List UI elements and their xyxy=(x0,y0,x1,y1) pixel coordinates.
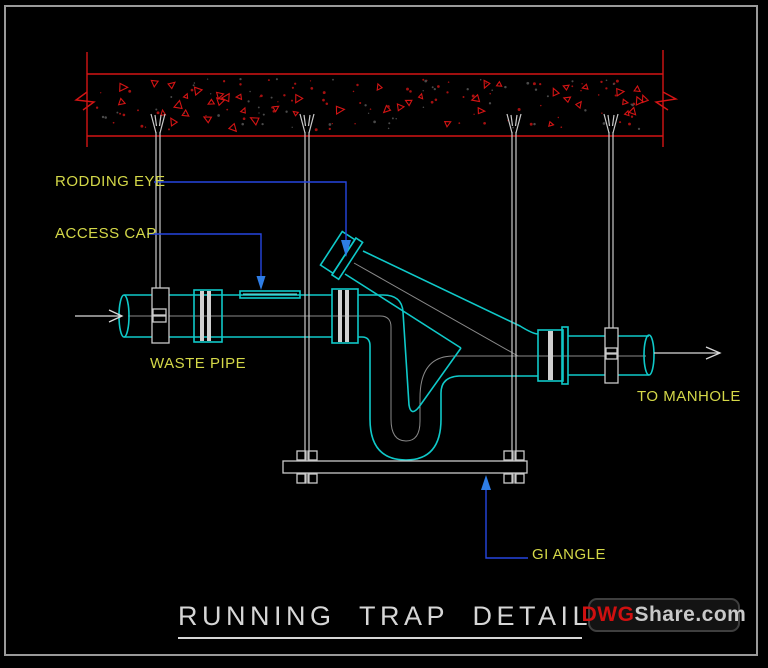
waste-pipe-label: WASTE PIPE xyxy=(150,356,246,371)
drawing-title: RUNNING TRAP DETAILS xyxy=(178,602,582,639)
watermark-suffix: Share.com xyxy=(634,603,746,627)
rodding-eye-label: RODDING EYE xyxy=(55,174,166,189)
dwgshare-watermark[interactable]: DWGShare.com xyxy=(588,598,740,632)
gi-angle-label: GI ANGLE xyxy=(532,547,606,562)
to-manhole-label: TO MANHOLE xyxy=(637,389,741,404)
drawing-border xyxy=(4,5,758,656)
watermark-prefix: DWG xyxy=(582,603,635,627)
cad-sheet: RODDING EYE ACCESS CAP WASTE PIPE TO MAN… xyxy=(0,0,768,668)
access-cap-label: ACCESS CAP xyxy=(55,226,157,241)
